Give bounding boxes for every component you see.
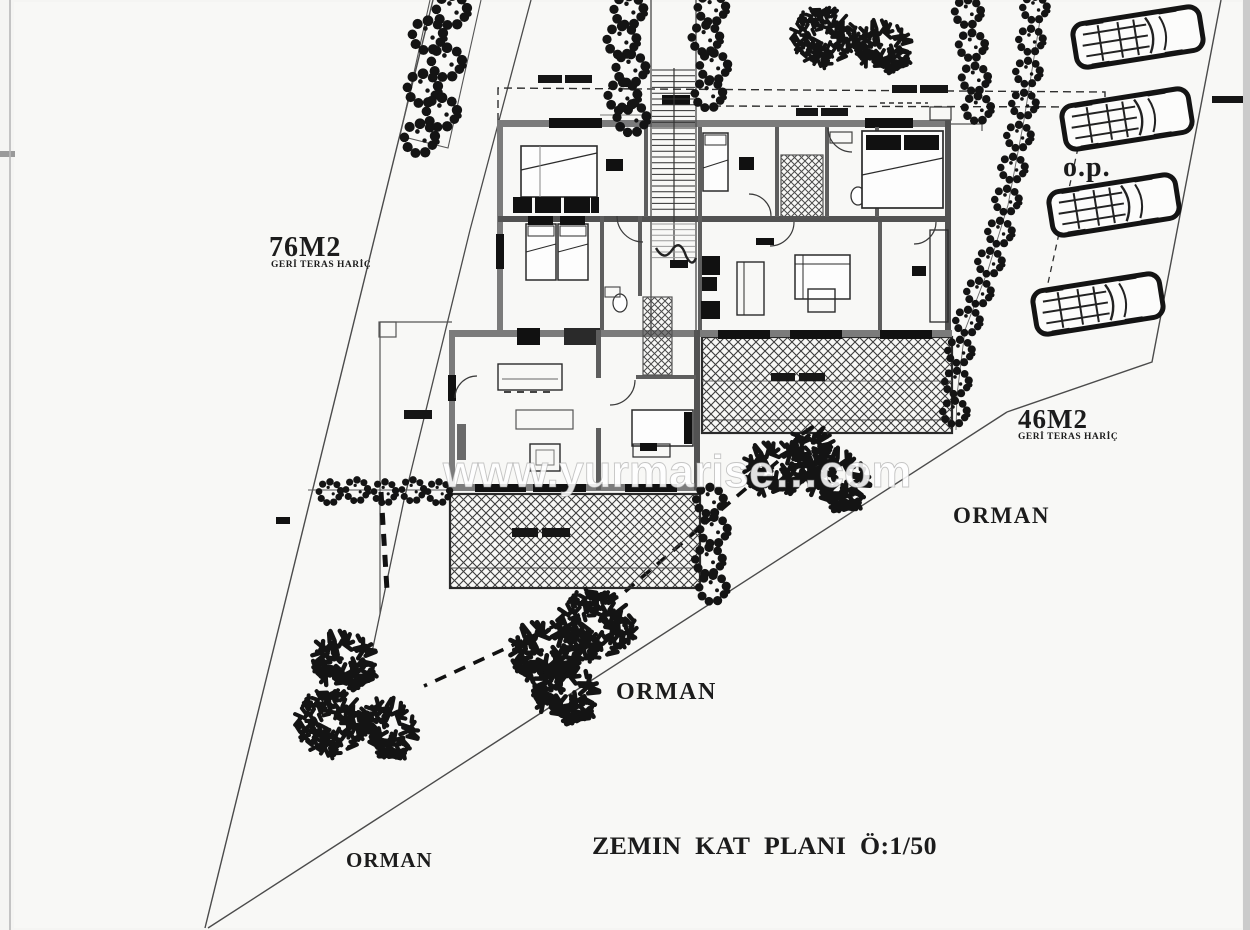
svg-text:ZEMIN KAT PLANI Ö:1/50: ZEMIN KAT PLANI Ö:1/50 <box>592 831 937 860</box>
svg-text:ORMAN: ORMAN <box>953 503 1050 528</box>
svg-text:www.yurmarise…com: www.yurmarise…com <box>442 446 912 497</box>
svg-text:46M2: 46M2 <box>1018 404 1088 434</box>
svg-text:ORMAN: ORMAN <box>616 679 717 705</box>
svg-text:ORMAN: ORMAN <box>346 848 433 872</box>
svg-text:o.p.: o.p. <box>1063 152 1111 183</box>
svg-text:GERİ TERAS HARİÇ: GERİ TERAS HARİÇ <box>1018 430 1118 442</box>
svg-text:76M2: 76M2 <box>269 232 341 263</box>
svg-text:GERİ TERAS HARİÇ: GERİ TERAS HARİÇ <box>271 258 371 270</box>
